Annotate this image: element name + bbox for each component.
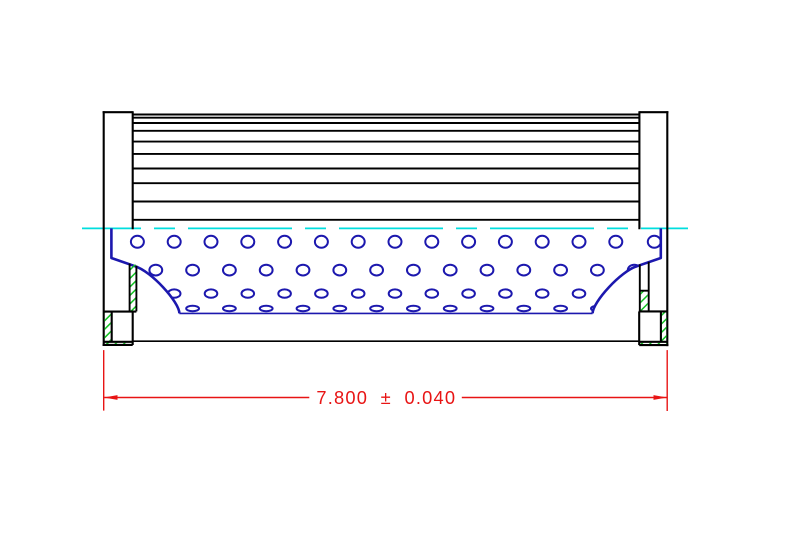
svg-text:7.800 ± 0.040: 7.800 ± 0.040 xyxy=(316,387,456,408)
